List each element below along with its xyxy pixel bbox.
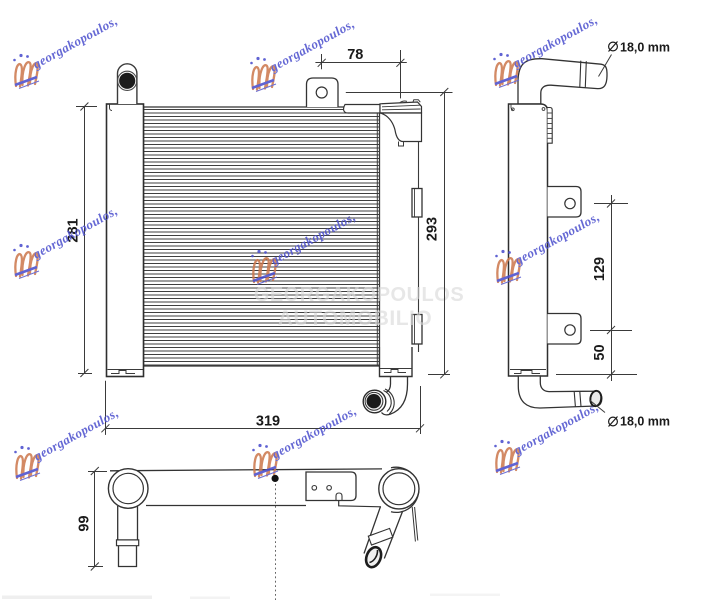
svg-text:50: 50: [592, 344, 608, 360]
svg-text:129: 129: [592, 257, 608, 281]
svg-text:GEORGAKOPOULOS: GEORGAKOPOULOS: [254, 284, 464, 306]
svg-text:78: 78: [347, 47, 363, 63]
svg-text:AUTOMOBILIO: AUTOMOBILIO: [278, 307, 432, 330]
svg-text:18,0 mm: 18,0 mm: [620, 415, 670, 429]
svg-text:99: 99: [77, 515, 93, 531]
svg-text:18,0 mm: 18,0 mm: [620, 41, 670, 55]
svg-text:319: 319: [256, 414, 280, 430]
svg-text:293: 293: [425, 217, 441, 241]
